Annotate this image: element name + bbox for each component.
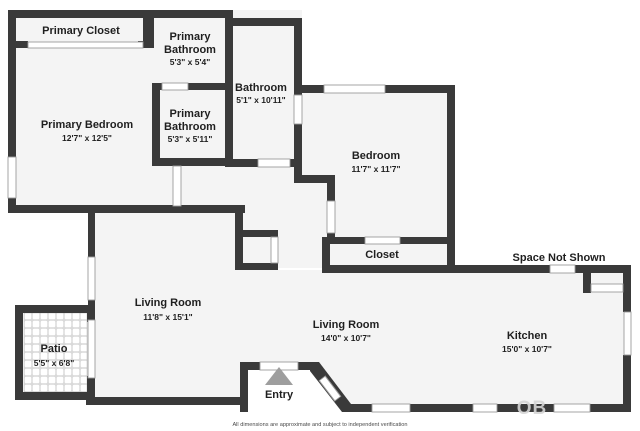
label-primary-bedroom: Primary Bedroom (41, 119, 134, 131)
kitchen-window (624, 312, 631, 355)
label-primary-bathroom-top-1: Primary (170, 31, 212, 43)
label-primary-closet: Primary Closet (42, 25, 120, 37)
hall-bathroom-door (258, 159, 290, 167)
label-patio: Patio (41, 343, 68, 355)
label-space-not-shown: Space Not Shown (513, 252, 606, 264)
closet-2-sliding-door (365, 237, 400, 244)
bathroom-bedroom-opening (294, 95, 302, 124)
label-entry: Entry (265, 389, 294, 401)
primary-suite-door (173, 166, 181, 206)
label-bathroom: Bathroom (235, 82, 287, 94)
bedroom-door (327, 201, 335, 233)
bathroom-divider-door (162, 83, 188, 90)
label-living-room-main: Living Room (135, 297, 202, 309)
kitchen-notch-door (591, 284, 623, 292)
photo-watermark: OB (517, 398, 548, 419)
label-kitchen: Kitchen (507, 330, 548, 342)
patio-door (88, 320, 95, 378)
nook-door (271, 237, 278, 263)
dims-primary-bedroom: 12'7" x 12'5" (62, 133, 112, 143)
kitchen-top-opening (550, 265, 575, 273)
label-primary-bathroom-top-2: Bathroom (164, 44, 216, 56)
label-living-room-second: Living Room (313, 319, 380, 331)
label-closet: Closet (365, 249, 399, 261)
closet-sliding-door (28, 42, 143, 48)
dims-bedroom: 11'7" x 11'7" (352, 164, 401, 174)
living-room-window (88, 257, 95, 300)
dims-bathroom: 5'1" x 10'11" (236, 95, 285, 105)
disclaimer-text: All dimensions are approximate and subje… (232, 422, 407, 428)
dims-living-room-second: 14'0" x 10'7" (321, 333, 371, 343)
bottom-window-2 (473, 404, 497, 412)
bottom-window-3 (554, 404, 590, 412)
floor-plan-drawing: Primary Closet Primary Bathroom 5'3" x 5… (0, 0, 640, 431)
dims-primary-bathroom-lower: 5'3" x 5'11" (168, 134, 213, 144)
label-bedroom: Bedroom (352, 150, 401, 162)
dims-primary-bathroom-top: 5'3" x 5'4" (170, 57, 210, 67)
dims-patio: 5'5" x 6'8" (34, 358, 74, 368)
primary-bedroom-window (8, 157, 16, 198)
bedroom-window (324, 85, 385, 93)
floor-plan: Primary Closet Primary Bathroom 5'3" x 5… (0, 0, 640, 431)
dims-kitchen: 15'0" x 10'7" (502, 344, 552, 354)
label-primary-bathroom-lower-2: Bathroom (164, 121, 216, 133)
dims-living-room-main: 11'8" x 15'1" (143, 312, 192, 322)
label-primary-bathroom-lower-1: Primary (170, 108, 212, 120)
bottom-window-1 (372, 404, 410, 412)
